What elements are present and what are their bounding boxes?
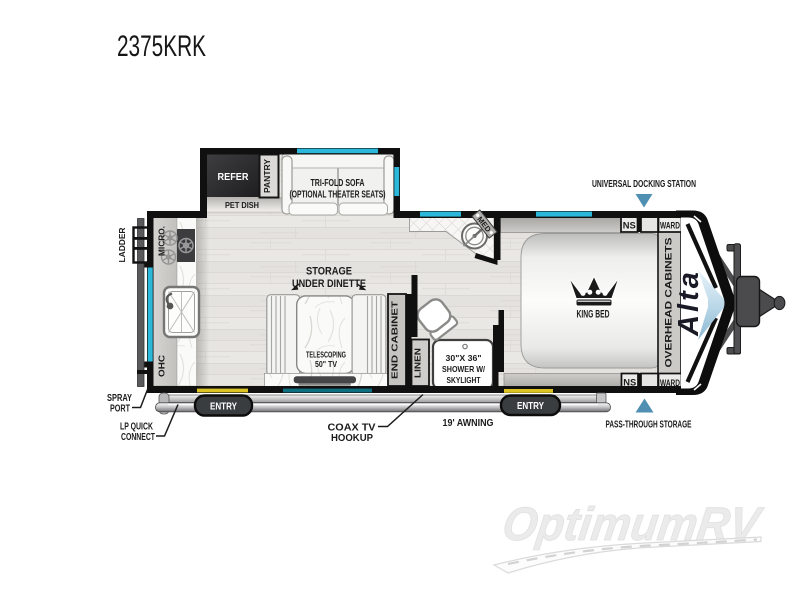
- svg-text:NS: NS: [623, 221, 636, 231]
- svg-text:TELESCOPING: TELESCOPING: [306, 351, 346, 360]
- svg-text:SHOWER W/: SHOWER W/: [442, 364, 486, 374]
- svg-text:2375KRK: 2375KRK: [117, 30, 206, 63]
- svg-text:PET DISH: PET DISH: [225, 201, 259, 210]
- svg-text:PANTRY: PANTRY: [263, 158, 272, 193]
- svg-text:19' AWNING: 19' AWNING: [443, 418, 494, 429]
- svg-text:LINEN: LINEN: [414, 348, 423, 378]
- svg-text:MICRO.: MICRO.: [157, 226, 167, 256]
- svg-text:SKYLIGHT: SKYLIGHT: [447, 375, 482, 385]
- svg-text:OVERHEAD CABINETS: OVERHEAD CABINETS: [664, 238, 674, 368]
- svg-text:OHC: OHC: [157, 355, 167, 377]
- svg-text:HOOKUP: HOOKUP: [331, 433, 373, 444]
- svg-text:END CABINET: END CABINET: [390, 300, 400, 379]
- svg-text:LADDER: LADDER: [117, 228, 127, 263]
- svg-text:WARD: WARD: [660, 221, 680, 231]
- svg-text:UNDER DINETTE: UNDER DINETTE: [292, 278, 366, 290]
- svg-text:TRI-FOLD SOFA: TRI-FOLD SOFA: [311, 177, 365, 189]
- svg-text:STORAGE: STORAGE: [306, 266, 352, 278]
- svg-text:50" TV: 50" TV: [315, 360, 338, 369]
- svg-text:ENTRY: ENTRY: [517, 401, 544, 412]
- svg-text:REFER: REFER: [218, 172, 250, 183]
- svg-text:KING BED: KING BED: [577, 309, 610, 321]
- svg-text:CONNECT: CONNECT: [121, 432, 155, 443]
- svg-text:SPRAY: SPRAY: [107, 393, 132, 404]
- svg-text:(OPTIONAL THEATER SEATS): (OPTIONAL THEATER SEATS): [290, 189, 386, 201]
- svg-text:COAX TV: COAX TV: [328, 423, 376, 434]
- svg-text:UNIVERSAL DOCKING STATION: UNIVERSAL DOCKING STATION: [592, 179, 696, 190]
- svg-text:ENTRY: ENTRY: [210, 402, 237, 413]
- svg-text:30"X 36": 30"X 36": [446, 353, 482, 363]
- svg-text:Alta: Alta: [673, 269, 705, 337]
- svg-text:PORT: PORT: [110, 404, 130, 415]
- svg-text:LP QUICK: LP QUICK: [120, 422, 154, 433]
- svg-text:PASS-THROUGH STORAGE: PASS-THROUGH STORAGE: [606, 420, 692, 431]
